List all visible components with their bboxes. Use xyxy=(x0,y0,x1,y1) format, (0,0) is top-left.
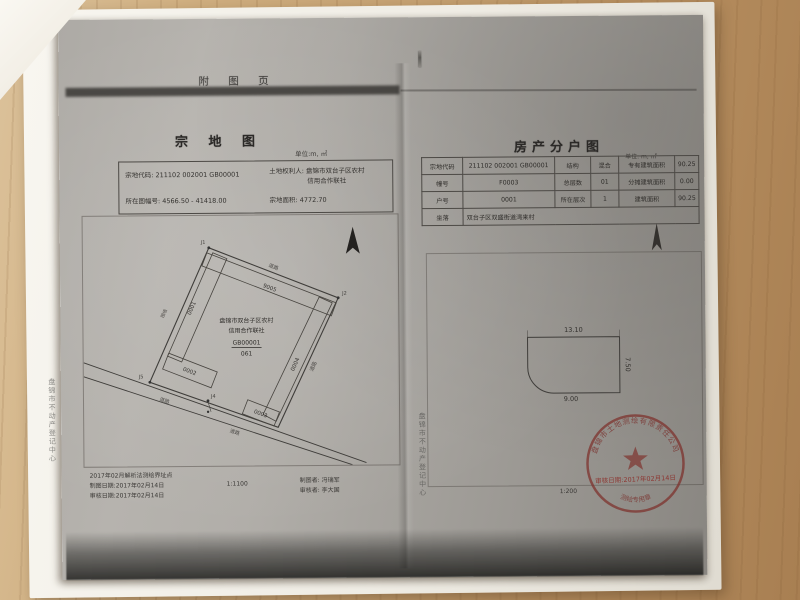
cell-label: 幢号 xyxy=(422,174,463,191)
parcel-area-value: 4772.70 xyxy=(300,196,327,204)
strip-0004-label: 0004 xyxy=(290,357,301,373)
review-date: 审核日期:2017年02月14日 xyxy=(90,491,173,502)
drafter-name: 制图者: 冯瑞军 xyxy=(300,476,340,486)
sheet-no-row: 所在图幅号: 4566.50 - 41418.00 xyxy=(125,195,226,206)
holder-row-line2: 信用合作联社 xyxy=(307,175,346,185)
parcel-info-box: 宗地代码: 211102 002001 GB00001 所在图幅号: 4566.… xyxy=(118,159,393,214)
cell-label: 建筑面积 xyxy=(619,190,675,207)
boundary-point-j5 xyxy=(148,381,151,384)
property-unit-map-title: 房产分户图 xyxy=(499,136,619,156)
north-arrow-icon xyxy=(346,227,360,254)
road-line-1 xyxy=(84,361,367,465)
checker-name: 审核者: 李大国 xyxy=(300,486,340,496)
table-row: 户号 0001 所在层次 1 建筑面积 90.25 xyxy=(422,189,699,208)
cell-value: 01 xyxy=(591,173,619,190)
cell-label: 户号 xyxy=(422,191,463,208)
right-side-vertical-text: 盘锦市不动产登记中心 xyxy=(417,412,428,512)
stamp-bottom-text: 测绘专用章 xyxy=(619,491,652,504)
dim-bottom-label: 9.00 xyxy=(564,395,579,403)
building-0002-label: 0002 xyxy=(182,367,197,378)
dim-top-label: 13.10 xyxy=(564,326,583,334)
cell-label: 分摊建筑面积 xyxy=(619,173,675,190)
road-point xyxy=(207,411,209,413)
scan-edge-line xyxy=(401,89,697,92)
surveyor-stamp: 盘锦市土地测绘有限责任公司 测绘专用章 审核日期:2017年02月14日 xyxy=(573,405,698,530)
cell-label: 所在层次 xyxy=(555,190,591,207)
building-0003-label: 0003 xyxy=(253,409,269,420)
sheet-no-value: 4566.50 - 41418.00 xyxy=(162,197,226,206)
point-label-j2: J2 xyxy=(341,291,347,297)
parcel-boundary xyxy=(149,247,339,428)
dim-right-label: 7.50 xyxy=(624,357,632,372)
road-label-b: 道路 xyxy=(229,427,241,437)
road-label-top: 道路 xyxy=(268,262,280,272)
cell-label: 坐落 xyxy=(422,208,463,225)
strip-0001-label: 0001 xyxy=(187,301,198,316)
holder-label: 土地权利人: xyxy=(269,167,304,175)
point-label-j5: J5 xyxy=(138,374,144,380)
credits: 制图者: 冯瑞军 审核者: 李大国 xyxy=(300,476,340,496)
survey-notes: 2017年02月解析法测绘界址点 制图日期:2017年02月14日 审核日期:2… xyxy=(90,471,173,501)
boundary-point-j2 xyxy=(337,296,340,299)
holder-row: 土地权利人: 盘锦市双台子区农村 xyxy=(269,165,364,176)
cell-label: 宗地代码 xyxy=(422,157,463,174)
cell-value: 混合 xyxy=(591,156,619,173)
svg-text:测绘专用章: 测绘专用章 xyxy=(619,491,652,504)
table-row: 幢号 F0003 总层数 01 分摊建筑面积 0.00 xyxy=(422,172,699,191)
point-label-j1: J1 xyxy=(200,240,206,246)
survey-note-1: 2017年02月解析法测绘界址点 xyxy=(90,471,173,482)
holder-value-line2: 信用合作联社 xyxy=(307,177,346,185)
cell-value: 90.25 xyxy=(675,189,699,206)
photocopy-page: 附 图 页 宗 地 图 单位:m, ㎡ 宗地代码: 211102 002001 … xyxy=(58,15,707,580)
parcel-area-label: 宗地面积: xyxy=(269,196,297,204)
cell-value: 1 xyxy=(591,190,619,207)
stamp-star-icon xyxy=(623,446,648,470)
parcel-map-scale: 1:1100 xyxy=(227,481,248,488)
attached-drawing-page-title: 附 图 页 xyxy=(198,73,276,89)
cell-value: 90.25 xyxy=(675,155,699,172)
cell-label: 总层数 xyxy=(555,173,591,190)
scan-dark-band-bottom xyxy=(66,527,703,580)
staple xyxy=(418,51,421,67)
wall-label: 围墙 xyxy=(159,308,169,320)
owner-name-line2: 信用合作联社 xyxy=(228,326,264,334)
north-arrow-icon-right xyxy=(648,221,666,253)
table-row: 宗地代码 211102 002001 GB00001 结构 混合 专有建筑面积 … xyxy=(422,155,699,174)
parcel-code-value: 211102 002001 GB00001 xyxy=(155,171,239,180)
parcel-area-row: 宗地面积: 4772.70 xyxy=(269,194,326,204)
road-line-2 xyxy=(84,375,353,467)
cell-label: 专有建筑面积 xyxy=(619,156,675,173)
owner-parcel-den: 061 xyxy=(241,350,253,357)
cell-value: F0003 xyxy=(463,174,555,192)
owner-parcel-code: GB00001 xyxy=(233,339,261,346)
unit-outline xyxy=(528,337,620,394)
cell-value: 211102 002001 GB00001 xyxy=(463,157,555,175)
cell-value: 0001 xyxy=(463,191,555,209)
stamp-date-text: 审核日期:2017年02月14日 xyxy=(595,473,676,485)
holder-value-line1: 盘锦市双台子区农村 xyxy=(306,167,365,175)
cell-label: 结构 xyxy=(555,156,591,173)
parcel-map-unit: 单位:m, ㎡ xyxy=(295,148,327,158)
left-side-vertical-text: 盘锦市不动产登记中心 xyxy=(47,378,58,496)
parcel-map-title: 宗 地 图 xyxy=(171,130,267,150)
photo-of-cadastral-document: 附 图 页 宗 地 图 单位:m, ㎡ 宗地代码: 211102 002001 … xyxy=(0,0,800,600)
boundary-point-j4 xyxy=(207,399,210,402)
cell-value: 0.00 xyxy=(675,172,699,189)
property-info-table: 宗地代码 211102 002001 GB00001 结构 混合 专有建筑面积 … xyxy=(421,155,700,226)
drawing-date: 制图日期:2017年02月14日 xyxy=(90,481,173,492)
point-label-j4: J4 xyxy=(210,394,216,400)
sheet-no-label: 所在图幅号: xyxy=(125,197,160,205)
parcel-code-row: 宗地代码: 211102 002001 GB00001 xyxy=(125,169,239,180)
boundary-point-j1 xyxy=(207,246,210,249)
parcel-sketch: J1 J2 J5 J4 9005 道路 0001 围墙 盘锦市双台子区农村 信用… xyxy=(83,214,400,466)
owner-name-line1: 盘锦市双台子区农村 xyxy=(219,316,273,324)
parcel-code-label: 宗地代码: xyxy=(125,171,153,179)
strip-0001 xyxy=(167,253,228,362)
road-label-right: 道路 xyxy=(308,360,318,372)
parcel-sketch-area: J1 J2 J5 J4 9005 道路 0001 围墙 盘锦市双台子区农村 信用… xyxy=(82,213,401,467)
